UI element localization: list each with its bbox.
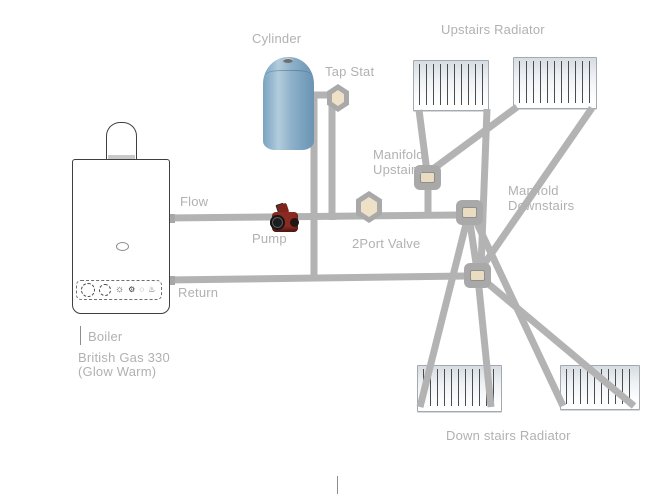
node-face <box>470 270 485 281</box>
manifold-downstairs-label: ManifoldDownstairs <box>508 183 574 213</box>
node-face <box>462 207 477 218</box>
label-line: Manifold <box>373 147 424 162</box>
cylinder-cap <box>283 58 293 63</box>
manifold-upstairs-label: ManifoldUpstairs <box>373 147 424 177</box>
boiler-label: Boiler <box>88 329 122 344</box>
boiler[interactable]: ☼ ⚙ ◌ ♨ <box>72 159 170 314</box>
hot-springs-icon: ♨ <box>148 286 155 294</box>
text-caret[interactable] <box>337 476 338 494</box>
boiler-logo <box>116 242 129 251</box>
two-port-valve-icon[interactable] <box>356 191 382 223</box>
pipe-manifold-to-right-upstairs-radiator <box>429 107 517 172</box>
return-label: Return <box>178 285 218 300</box>
text-caret[interactable] <box>80 326 81 345</box>
diagram-canvas: ☼ ⚙ ◌ ♨ Cylinder Tap Stat Upstairs Radia… <box>0 0 666 500</box>
upstairs-radiator-label: Upstairs Radiator <box>441 22 545 37</box>
pump-icon[interactable] <box>270 203 300 234</box>
sun-icon: ☼ <box>115 285 124 295</box>
dial-icon[interactable] <box>81 283 95 297</box>
dial-icon[interactable] <box>99 284 111 296</box>
boiler-model-line2: (Glow Warm) <box>78 364 156 379</box>
downstairs-radiator-label: Down stairs Radiator <box>446 428 571 443</box>
boiler-control-panel: ☼ ⚙ ◌ ♨ <box>76 280 162 300</box>
flow-label: Flow <box>180 194 208 209</box>
manifold-downstairs-node[interactable] <box>464 263 491 288</box>
boiler-flue <box>106 122 137 161</box>
pump-wheel <box>270 215 285 230</box>
label-line: Upstairs <box>373 162 422 177</box>
cylinder-label: Cylinder <box>252 31 301 46</box>
pump-label: Pump <box>252 231 287 246</box>
pipe-to-left-downstairs-radiator-left <box>420 216 468 407</box>
tap-stat-label: Tap Stat <box>325 64 374 79</box>
flow-junction-node[interactable] <box>456 200 483 225</box>
gear-icon: ⚙ <box>128 286 135 294</box>
cylinder-seam <box>265 70 312 80</box>
two-port-valve-label: 2Port Valve <box>352 236 420 251</box>
pipe-to-left-downstairs-radiator-right <box>478 278 491 407</box>
cylinder[interactable] <box>263 57 314 150</box>
pump-knob <box>290 218 299 227</box>
boiler-model-line1: British Gas 330 <box>78 350 170 365</box>
tap-stat-valve-icon[interactable] <box>327 84 349 112</box>
label-line: Downstairs <box>508 198 574 213</box>
label-line: Manifold <box>508 183 559 198</box>
dotted-circle-icon: ◌ <box>139 286 144 294</box>
